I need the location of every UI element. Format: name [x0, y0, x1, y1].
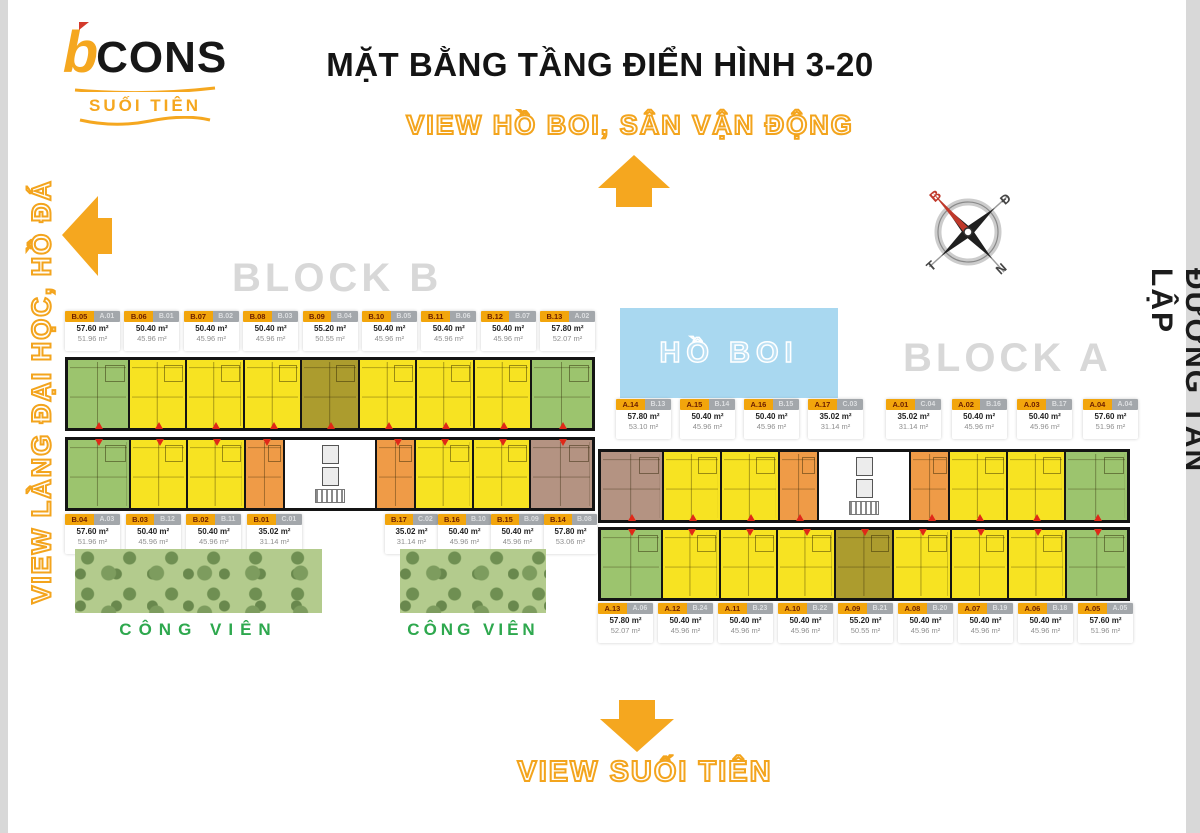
unit-area-gross: 50.40 m² [680, 413, 735, 421]
unit-code: B.07 [184, 311, 213, 322]
unit-alt-code: B.18 [1047, 603, 1073, 614]
unit-area-net: 45.96 m² [421, 335, 476, 343]
block-b-bottom-labels-left: B.04 A.03 57.60 m² 51.96 m² B.03 B.12 50… [65, 514, 302, 554]
unit-badges: B.04 A.03 [65, 514, 120, 525]
unit-area-gross: 55.20 m² [303, 325, 358, 333]
unit-code: A.17 [808, 399, 837, 410]
unit-badges: A.10 B.22 [778, 603, 833, 614]
unit-area-gross: 50.40 m² [718, 617, 773, 625]
unit-code: A.13 [598, 603, 627, 614]
plan-unit-A.15 [662, 452, 720, 520]
unit-badges: B.12 B.07 [481, 311, 536, 322]
unit-area-gross: 50.40 m² [1017, 413, 1072, 421]
unit-code: A.02 [952, 399, 981, 410]
unit-label-B.04: B.04 A.03 57.60 m² 51.96 m² [65, 514, 120, 554]
entry-marker-icon [928, 514, 936, 521]
unit-alt-code: B.24 [687, 603, 713, 614]
unit-area-gross: 50.40 m² [481, 325, 536, 333]
entry-marker-icon [628, 529, 636, 536]
park-strip-left [75, 549, 322, 613]
plan-unit-B.01 [244, 440, 283, 508]
plan-unit-B.17 [375, 440, 414, 508]
entry-marker-icon [559, 422, 567, 429]
unit-badges: B.03 B.12 [126, 514, 181, 525]
unit-area-net: 31.14 m² [385, 538, 438, 546]
unit-area-gross: 35.02 m² [247, 528, 302, 536]
unit-alt-code: C.01 [276, 514, 302, 525]
unit-alt-code: B.12 [154, 514, 180, 525]
unit-area-gross: 57.80 m² [616, 413, 671, 421]
unit-area-net: 45.96 m² [243, 335, 298, 343]
plan-unit-A.08 [892, 530, 949, 598]
block-a-mid-labels-left: A.14 B.13 57.80 m² 53.10 m² A.15 B.14 50… [616, 399, 863, 439]
unit-label-A.03: A.03 B.17 50.40 m² 45.96 m² [1017, 399, 1072, 439]
plan-unit-B.09 [300, 360, 358, 428]
plan-unit-B.03 [129, 440, 187, 508]
entry-marker-icon [919, 529, 927, 536]
left-frame-edge [0, 0, 8, 833]
plan-unit-A.09 [834, 530, 892, 598]
unit-label-B.13: B.13 A.02 57.80 m² 52.07 m² [540, 311, 595, 351]
unit-area-gross: 50.40 m² [658, 617, 713, 625]
view-top-label: VIEW HỒ BOI, SÂN VẬN ĐỘNG [340, 110, 920, 141]
plan-unit-A.04 [1064, 452, 1127, 520]
plan-unit-A.11 [719, 530, 776, 598]
entry-marker-icon [270, 422, 278, 429]
unit-badges: B.01 C.01 [247, 514, 302, 525]
unit-area-gross: 50.40 m² [362, 325, 417, 333]
unit-label-A.05: A.05 A.05 57.60 m² 51.96 m² [1078, 603, 1133, 643]
unit-area-net: 45.96 m² [491, 538, 544, 546]
unit-label-A.06: A.06 B.18 50.40 m² 45.96 m² [1018, 603, 1073, 643]
unit-alt-code: B.04 [331, 311, 357, 322]
building-core [817, 452, 909, 520]
unit-area-gross: 50.40 m² [184, 325, 239, 333]
unit-area-gross: 50.40 m² [126, 528, 181, 536]
unit-area-gross: 35.02 m² [808, 413, 863, 421]
unit-area-gross: 50.40 m² [898, 617, 953, 625]
unit-area-net: 45.96 m² [1017, 423, 1072, 431]
unit-alt-code: B.10 [466, 514, 491, 525]
unit-label-B.05: B.05 A.01 57.60 m² 51.96 m² [65, 311, 120, 351]
plan-unit-B.12 [473, 360, 530, 428]
plan-unit-B.07 [185, 360, 242, 428]
unit-alt-code: A.05 [1107, 603, 1133, 614]
unit-code: A.16 [744, 399, 773, 410]
unit-area-net: 45.96 m² [124, 335, 179, 343]
unit-code: A.08 [898, 603, 927, 614]
unit-alt-code: B.23 [747, 603, 773, 614]
entry-marker-icon [746, 529, 754, 536]
entry-marker-icon [499, 439, 507, 446]
unit-label-A.10: A.10 B.22 50.40 m² 45.96 m² [778, 603, 833, 643]
unit-area-gross: 50.40 m² [124, 325, 179, 333]
park-label-right: CÔNG VIÊN [400, 620, 546, 640]
unit-area-gross: 50.40 m² [952, 413, 1007, 421]
plan-unit-B.11 [415, 360, 472, 428]
unit-area-gross: 50.40 m² [438, 528, 491, 536]
entry-marker-icon [976, 514, 984, 521]
elevator-icon [322, 467, 339, 486]
unit-area-gross: 57.80 m² [598, 617, 653, 625]
block-b-bottom-labels-right: B.17 C.02 35.02 m² 31.14 m² B.16 B.10 50… [385, 514, 597, 554]
unit-area-net: 45.96 m² [362, 335, 417, 343]
unit-alt-code: A.06 [627, 603, 653, 614]
unit-badges: A.09 B.21 [838, 603, 893, 614]
unit-area-gross: 57.80 m² [544, 528, 597, 536]
unit-area-net: 45.96 m² [438, 538, 491, 546]
plan-unit-A.12 [661, 530, 718, 598]
unit-area-net: 31.14 m² [247, 538, 302, 546]
unit-badges: B.08 B.03 [243, 311, 298, 322]
unit-area-net: 53.10 m² [616, 423, 671, 431]
block-a-title: BLOCK A [903, 336, 1112, 381]
unit-code: A.14 [616, 399, 645, 410]
plan-unit-A.13 [601, 530, 661, 598]
unit-area-net: 45.96 m² [680, 423, 735, 431]
unit-badges: A.16 B.15 [744, 399, 799, 410]
entry-marker-icon [559, 439, 567, 446]
unit-alt-code: C.04 [915, 399, 941, 410]
unit-alt-code: B.09 [519, 514, 544, 525]
unit-code: A.09 [838, 603, 867, 614]
unit-area-net: 45.96 m² [778, 627, 833, 635]
swimming-pool: HỒ BOI [620, 308, 838, 398]
unit-code: A.07 [958, 603, 987, 614]
unit-label-A.01: A.01 C.04 35.02 m² 31.14 m² [886, 399, 941, 439]
plan-unit-A.02 [948, 452, 1006, 520]
unit-badges: B.05 A.01 [65, 311, 120, 322]
entry-marker-icon [441, 439, 449, 446]
logo-subtitle: SUỐI TIÊN [55, 96, 235, 116]
unit-alt-code: B.22 [807, 603, 833, 614]
unit-code: A.06 [1018, 603, 1047, 614]
unit-code: B.13 [540, 311, 569, 322]
entry-marker-icon [861, 529, 869, 536]
entry-marker-icon [803, 529, 811, 536]
plan-unit-B.02 [186, 440, 244, 508]
unit-badges: A.13 A.06 [598, 603, 653, 614]
entry-marker-icon [1094, 529, 1102, 536]
unit-area-net: 51.96 m² [1078, 627, 1133, 635]
block-b-row-top [65, 357, 595, 431]
unit-badges: B.09 B.04 [303, 311, 358, 322]
unit-label-A.12: A.12 B.24 50.40 m² 45.96 m² [658, 603, 713, 643]
unit-area-net: 31.14 m² [886, 423, 941, 431]
entry-marker-icon [394, 439, 402, 446]
block-b-top-labels: B.05 A.01 57.60 m² 51.96 m² B.06 B.01 50… [65, 311, 595, 351]
unit-alt-code: B.11 [215, 514, 241, 525]
unit-alt-code: C.02 [413, 514, 438, 525]
unit-area-net: 45.96 m² [658, 627, 713, 635]
unit-area-net: 52.07 m² [540, 335, 595, 343]
unit-area-net: 53.06 m² [544, 538, 597, 546]
entry-marker-icon [1094, 514, 1102, 521]
entry-marker-icon [213, 439, 221, 446]
unit-badges: A.04 A.04 [1083, 399, 1138, 410]
unit-code: B.09 [303, 311, 332, 322]
unit-area-gross: 57.60 m² [1078, 617, 1133, 625]
unit-badges: B.17 C.02 [385, 514, 438, 525]
unit-code: A.12 [658, 603, 687, 614]
plan-unit-A.05 [1065, 530, 1127, 598]
unit-area-net: 50.55 m² [838, 627, 893, 635]
unit-code: B.02 [186, 514, 215, 525]
unit-code: B.17 [385, 514, 413, 525]
unit-label-A.07: A.07 B.19 50.40 m² 45.96 m² [958, 603, 1013, 643]
entry-marker-icon [212, 422, 220, 429]
plan-unit-A.06 [1007, 530, 1064, 598]
unit-area-gross: 57.60 m² [65, 528, 120, 536]
unit-label-B.15: B.15 B.09 50.40 m² 45.96 m² [491, 514, 544, 554]
unit-badges: A.07 B.19 [958, 603, 1013, 614]
unit-area-net: 45.96 m² [184, 335, 239, 343]
entry-marker-icon [628, 514, 636, 521]
unit-area-gross: 50.40 m² [958, 617, 1013, 625]
unit-badges: B.07 B.02 [184, 311, 239, 322]
unit-label-B.01: B.01 C.01 35.02 m² 31.14 m² [247, 514, 302, 554]
unit-alt-code: B.14 [709, 399, 735, 410]
pool-label: HỒ BOI [659, 337, 798, 370]
unit-code: B.05 [65, 311, 94, 322]
unit-label-A.13: A.13 A.06 57.80 m² 52.07 m² [598, 603, 653, 643]
elevator-icon [856, 457, 873, 476]
unit-label-B.09: B.09 B.04 55.20 m² 50.55 m² [303, 311, 358, 351]
unit-area-gross: 50.40 m² [421, 325, 476, 333]
unit-label-B.06: B.06 B.01 50.40 m² 45.96 m² [124, 311, 179, 351]
arrow-down-icon [600, 700, 674, 754]
unit-area-gross: 55.20 m² [838, 617, 893, 625]
unit-alt-code: C.03 [837, 399, 863, 410]
elevator-icon [322, 445, 339, 464]
unit-badges: A.15 B.14 [680, 399, 735, 410]
unit-alt-code: B.05 [391, 311, 417, 322]
unit-code: B.01 [247, 514, 276, 525]
unit-code: B.14 [544, 514, 572, 525]
page-title: MẶT BẰNG TẦNG ĐIỂN HÌNH 3-20 [0, 46, 1200, 84]
entry-marker-icon [689, 514, 697, 521]
unit-area-net: 51.96 m² [1083, 423, 1138, 431]
unit-area-gross: 35.02 m² [385, 528, 438, 536]
unit-alt-code: B.20 [927, 603, 953, 614]
unit-alt-code: B.08 [572, 514, 597, 525]
plan-unit-B.04 [68, 440, 129, 508]
entry-marker-icon [688, 529, 696, 536]
unit-area-net: 45.96 m² [126, 538, 181, 546]
unit-label-B.14: B.14 B.08 57.80 m² 53.06 m² [544, 514, 597, 554]
unit-code: B.04 [65, 514, 94, 525]
logo-flag-icon [79, 22, 89, 30]
view-bottom-label: VIEW SUỐI TIÊN [420, 756, 870, 789]
unit-label-B.02: B.02 B.11 50.40 m² 45.96 m² [186, 514, 241, 554]
unit-area-net: 45.96 m² [744, 423, 799, 431]
unit-area-net: 45.96 m² [898, 627, 953, 635]
park-strip-right [400, 549, 546, 613]
unit-area-gross: 50.40 m² [243, 325, 298, 333]
floor-plan-canvas: bCONS SUỐI TIÊN MẶT BẰNG TẦNG ĐIỂN HÌNH … [0, 0, 1200, 833]
entry-marker-icon [1034, 529, 1042, 536]
unit-code: A.15 [680, 399, 709, 410]
block-a-bottom-labels: A.13 A.06 57.80 m² 52.07 m² A.12 B.24 50… [598, 603, 1133, 643]
unit-label-B.10: B.10 B.05 50.40 m² 45.96 m² [362, 311, 417, 351]
unit-badges: A.02 B.16 [952, 399, 1007, 410]
unit-area-gross: 50.40 m² [186, 528, 241, 536]
unit-label-B.12: B.12 B.07 50.40 m² 45.96 m² [481, 311, 536, 351]
unit-area-net: 45.96 m² [1018, 627, 1073, 635]
unit-badges: A.14 B.13 [616, 399, 671, 410]
unit-alt-code: B.01 [153, 311, 179, 322]
unit-area-net: 45.96 m² [718, 627, 773, 635]
unit-badges: A.11 B.23 [718, 603, 773, 614]
plan-unit-B.10 [358, 360, 415, 428]
plan-unit-A.14 [601, 452, 662, 520]
unit-alt-code: B.19 [987, 603, 1013, 614]
entry-marker-icon [385, 422, 393, 429]
entry-marker-icon [796, 514, 804, 521]
stairs-icon [849, 501, 879, 515]
unit-alt-code: A.03 [94, 514, 120, 525]
unit-alt-code: B.13 [645, 399, 671, 410]
unit-area-gross: 50.40 m² [1018, 617, 1073, 625]
compass-east: Đ [997, 190, 1014, 207]
unit-area-gross: 35.02 m² [886, 413, 941, 421]
unit-alt-code: B.15 [773, 399, 799, 410]
building-core [283, 440, 375, 508]
unit-alt-code: B.03 [272, 311, 298, 322]
block-b-title: BLOCK B [232, 256, 442, 301]
entry-marker-icon [156, 439, 164, 446]
unit-alt-code: A.04 [1112, 399, 1138, 410]
unit-area-net: 31.14 m² [808, 423, 863, 431]
unit-alt-code: B.06 [450, 311, 476, 322]
unit-label-A.14: A.14 B.13 57.80 m² 53.10 m² [616, 399, 671, 439]
unit-badges: B.02 B.11 [186, 514, 241, 525]
unit-badges: A.03 B.17 [1017, 399, 1072, 410]
unit-label-B.03: B.03 B.12 50.40 m² 45.96 m² [126, 514, 181, 554]
unit-label-A.09: A.09 B.21 55.20 m² 50.55 m² [838, 603, 893, 643]
unit-area-net: 51.96 m² [65, 538, 120, 546]
unit-alt-code: A.02 [569, 311, 595, 322]
unit-badges: A.17 C.03 [808, 399, 863, 410]
plan-unit-B.16 [414, 440, 472, 508]
plan-unit-B.08 [243, 360, 300, 428]
entry-marker-icon [95, 439, 103, 446]
unit-code: B.12 [481, 311, 510, 322]
entry-marker-icon [442, 422, 450, 429]
unit-code: A.01 [886, 399, 915, 410]
plan-unit-A.07 [950, 530, 1007, 598]
unit-label-A.16: A.16 B.15 50.40 m² 45.96 m² [744, 399, 799, 439]
unit-area-net: 45.96 m² [952, 423, 1007, 431]
unit-badges: B.13 A.02 [540, 311, 595, 322]
plan-unit-B.14 [529, 440, 592, 508]
unit-alt-code: B.07 [509, 311, 535, 322]
entry-marker-icon [1033, 514, 1041, 521]
unit-code: A.05 [1078, 603, 1107, 614]
unit-area-net: 45.96 m² [186, 538, 241, 546]
unit-badges: B.10 B.05 [362, 311, 417, 322]
unit-area-net: 50.55 m² [303, 335, 358, 343]
unit-label-A.11: A.11 B.23 50.40 m² 45.96 m² [718, 603, 773, 643]
unit-code: A.04 [1083, 399, 1112, 410]
logo-wave-icon [70, 116, 220, 128]
unit-area-net: 51.96 m² [65, 335, 120, 343]
block-b-row-bottom [65, 437, 595, 511]
unit-code: A.03 [1017, 399, 1046, 410]
plan-unit-A.16 [720, 452, 778, 520]
unit-alt-code: B.17 [1046, 399, 1072, 410]
plan-unit-A.01 [909, 452, 948, 520]
unit-badges: B.11 B.06 [421, 311, 476, 322]
unit-label-A.02: A.02 B.16 50.40 m² 45.96 m² [952, 399, 1007, 439]
unit-code: B.06 [124, 311, 153, 322]
unit-badges: A.06 B.18 [1018, 603, 1073, 614]
unit-code: B.15 [491, 514, 519, 525]
unit-area-net: 45.96 m² [958, 627, 1013, 635]
unit-label-B.08: B.08 B.03 50.40 m² 45.96 m² [243, 311, 298, 351]
entry-marker-icon [263, 439, 271, 446]
unit-label-A.08: A.08 B.20 50.40 m² 45.96 m² [898, 603, 953, 643]
unit-alt-code: B.02 [213, 311, 239, 322]
block-a-mid-labels-right: A.01 C.04 35.02 m² 31.14 m² A.02 B.16 50… [886, 399, 1138, 439]
park-label-left: CÔNG VIÊN [75, 620, 322, 640]
entry-marker-icon [155, 422, 163, 429]
unit-code: B.16 [438, 514, 466, 525]
plan-unit-B.06 [128, 360, 185, 428]
stairs-icon [315, 489, 345, 503]
entry-marker-icon [327, 422, 335, 429]
arrow-left-icon [62, 192, 114, 286]
unit-alt-code: A.01 [94, 311, 120, 322]
unit-area-gross: 50.40 m² [778, 617, 833, 625]
unit-alt-code: B.16 [980, 399, 1006, 410]
unit-area-net: 52.07 m² [598, 627, 653, 635]
block-a-row-top [598, 449, 1130, 523]
unit-label-A.04: A.04 A.04 57.60 m² 51.96 m² [1083, 399, 1138, 439]
unit-badges: B.06 B.01 [124, 311, 179, 322]
plan-unit-A.17 [778, 452, 817, 520]
unit-code: B.03 [126, 514, 155, 525]
unit-label-B.16: B.16 B.10 50.40 m² 45.96 m² [438, 514, 491, 554]
view-left-label: VIEW LÀNG ĐẠI HỌC, HỒ ĐÁ [27, 172, 58, 612]
unit-alt-code: B.21 [867, 603, 893, 614]
plan-unit-B.15 [472, 440, 530, 508]
arrow-up-icon [598, 155, 670, 209]
unit-code: B.11 [421, 311, 450, 322]
entry-marker-icon [500, 422, 508, 429]
unit-badges: B.15 B.09 [491, 514, 544, 525]
compass-icon: B Đ N T [912, 176, 1024, 288]
unit-label-B.07: B.07 B.02 50.40 m² 45.96 m² [184, 311, 239, 351]
unit-label-B.17: B.17 C.02 35.02 m² 31.14 m² [385, 514, 438, 554]
unit-code: B.10 [362, 311, 391, 322]
unit-area-gross: 57.60 m² [1083, 413, 1138, 421]
unit-badges: B.16 B.10 [438, 514, 491, 525]
unit-code: B.08 [243, 311, 272, 322]
unit-area-net: 45.96 m² [481, 335, 536, 343]
plan-unit-A.03 [1006, 452, 1064, 520]
entry-marker-icon [747, 514, 755, 521]
unit-label-A.15: A.15 B.14 50.40 m² 45.96 m² [680, 399, 735, 439]
unit-area-gross: 50.40 m² [491, 528, 544, 536]
entry-marker-icon [95, 422, 103, 429]
unit-area-gross: 50.40 m² [744, 413, 799, 421]
unit-area-gross: 57.80 m² [540, 325, 595, 333]
block-a-row-bottom [598, 527, 1130, 601]
entry-marker-icon [977, 529, 985, 536]
unit-badges: B.14 B.08 [544, 514, 597, 525]
unit-badges: A.01 C.04 [886, 399, 941, 410]
